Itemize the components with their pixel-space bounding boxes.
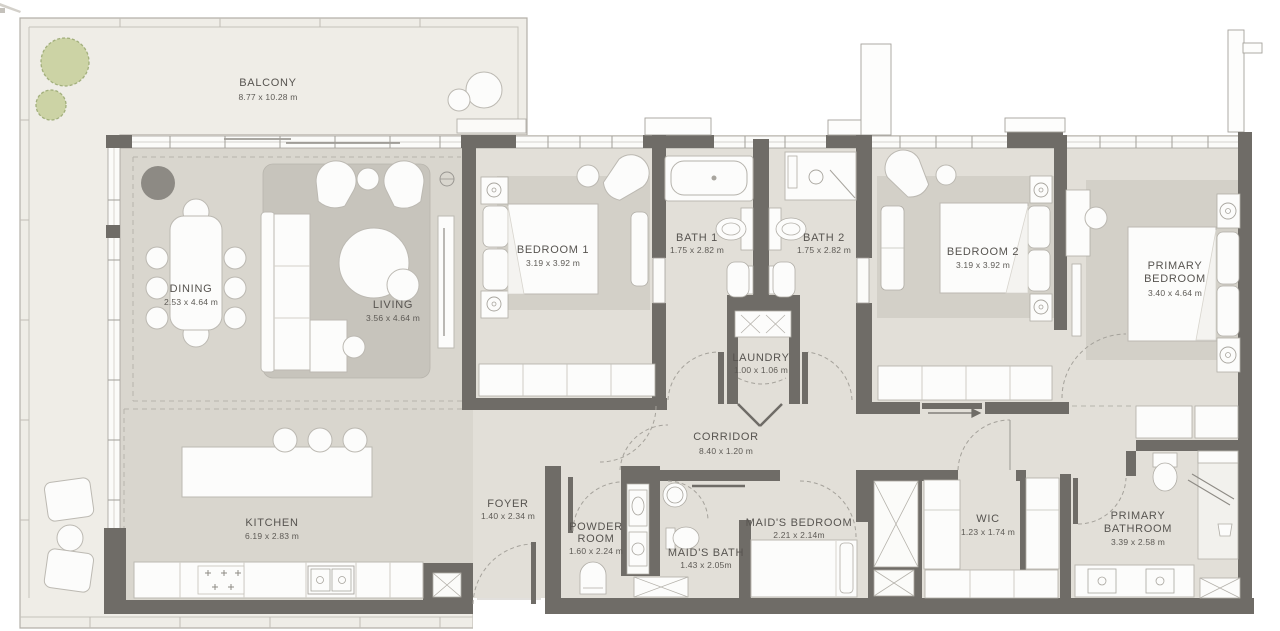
- svg-text:3.19 x 3.92 m: 3.19 x 3.92 m: [526, 258, 580, 268]
- svg-text:DINING: DINING: [170, 283, 213, 295]
- svg-text:CORRIDOR: CORRIDOR: [693, 431, 759, 443]
- svg-text:MAID'S BATH: MAID'S BATH: [668, 547, 744, 559]
- svg-text:2.53 x 4.64 m: 2.53 x 4.64 m: [164, 297, 218, 307]
- svg-text:LIVING: LIVING: [373, 299, 413, 311]
- svg-text:1.40 x 2.34 m: 1.40 x 2.34 m: [481, 511, 535, 521]
- svg-text:POWDER: POWDER: [569, 521, 623, 533]
- svg-text:3.40 x 4.64 m: 3.40 x 4.64 m: [1148, 288, 1202, 298]
- svg-text:LAUNDRY: LAUNDRY: [732, 352, 789, 364]
- svg-text:1.60 x 2.24 m: 1.60 x 2.24 m: [569, 546, 623, 556]
- svg-text:BEDROOM 1: BEDROOM 1: [517, 244, 589, 256]
- svg-text:8.77 x 10.28 m: 8.77 x 10.28 m: [238, 92, 297, 102]
- svg-text:1.75 x 2.82 m: 1.75 x 2.82 m: [670, 245, 724, 255]
- svg-text:6.19 x 2.83 m: 6.19 x 2.83 m: [245, 531, 299, 541]
- svg-text:8.40 x 1.20 m: 8.40 x 1.20 m: [699, 446, 753, 456]
- svg-text:ROOM: ROOM: [577, 533, 614, 545]
- svg-text:BEDROOM 2: BEDROOM 2: [947, 246, 1019, 258]
- svg-text:PRIMARY: PRIMARY: [1148, 260, 1203, 272]
- svg-text:3.19 x 3.92 m: 3.19 x 3.92 m: [956, 260, 1010, 270]
- svg-text:3.39 x 2.58 m: 3.39 x 2.58 m: [1111, 537, 1165, 547]
- svg-text:BALCONY: BALCONY: [239, 77, 296, 89]
- svg-text:WIC: WIC: [976, 513, 999, 525]
- svg-text:BATH 1: BATH 1: [676, 232, 718, 244]
- svg-text:PRIMARY: PRIMARY: [1111, 510, 1166, 522]
- svg-text:1.23 x 1.74 m: 1.23 x 1.74 m: [961, 527, 1015, 537]
- svg-text:BEDROOM: BEDROOM: [1144, 273, 1206, 285]
- svg-text:MAID'S BEDROOM: MAID'S BEDROOM: [746, 517, 853, 529]
- svg-text:BATH 2: BATH 2: [803, 232, 845, 244]
- svg-text:2.21 x 2.14m: 2.21 x 2.14m: [773, 530, 825, 540]
- svg-text:1.43 x 2.05m: 1.43 x 2.05m: [680, 560, 732, 570]
- svg-text:1.75 x 2.82 m: 1.75 x 2.82 m: [797, 245, 851, 255]
- svg-text:KITCHEN: KITCHEN: [245, 517, 298, 529]
- svg-text:1.00 x 1.06 m: 1.00 x 1.06 m: [734, 365, 788, 375]
- svg-text:3.56 x 4.64 m: 3.56 x 4.64 m: [366, 313, 420, 323]
- svg-text:BATHROOM: BATHROOM: [1104, 523, 1172, 535]
- svg-text:FOYER: FOYER: [487, 498, 528, 510]
